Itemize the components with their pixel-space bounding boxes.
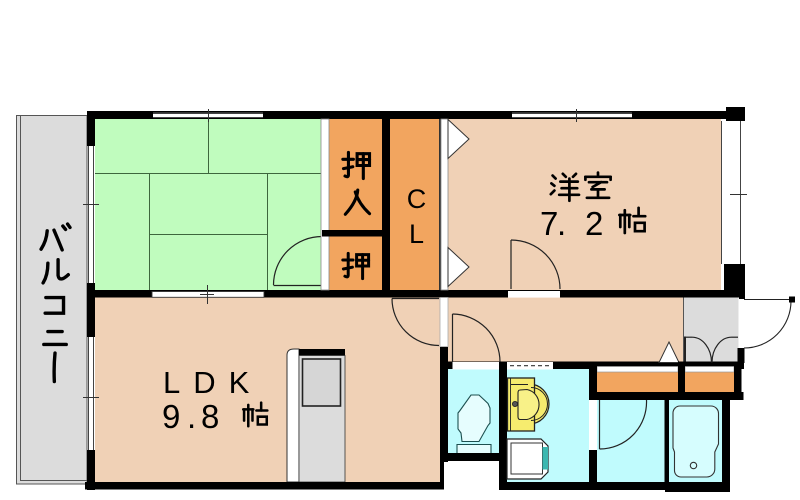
svg-text:.: .: [557, 205, 566, 242]
svg-text:7: 7: [540, 205, 558, 242]
svg-text:.: .: [187, 398, 196, 435]
svg-text:C: C: [407, 184, 427, 214]
svg-text:2: 2: [585, 205, 603, 242]
svg-text:L: L: [409, 219, 424, 249]
svg-text:9: 9: [162, 398, 180, 435]
svg-text:LDK: LDK: [163, 365, 262, 400]
svg-text:8: 8: [201, 398, 219, 435]
